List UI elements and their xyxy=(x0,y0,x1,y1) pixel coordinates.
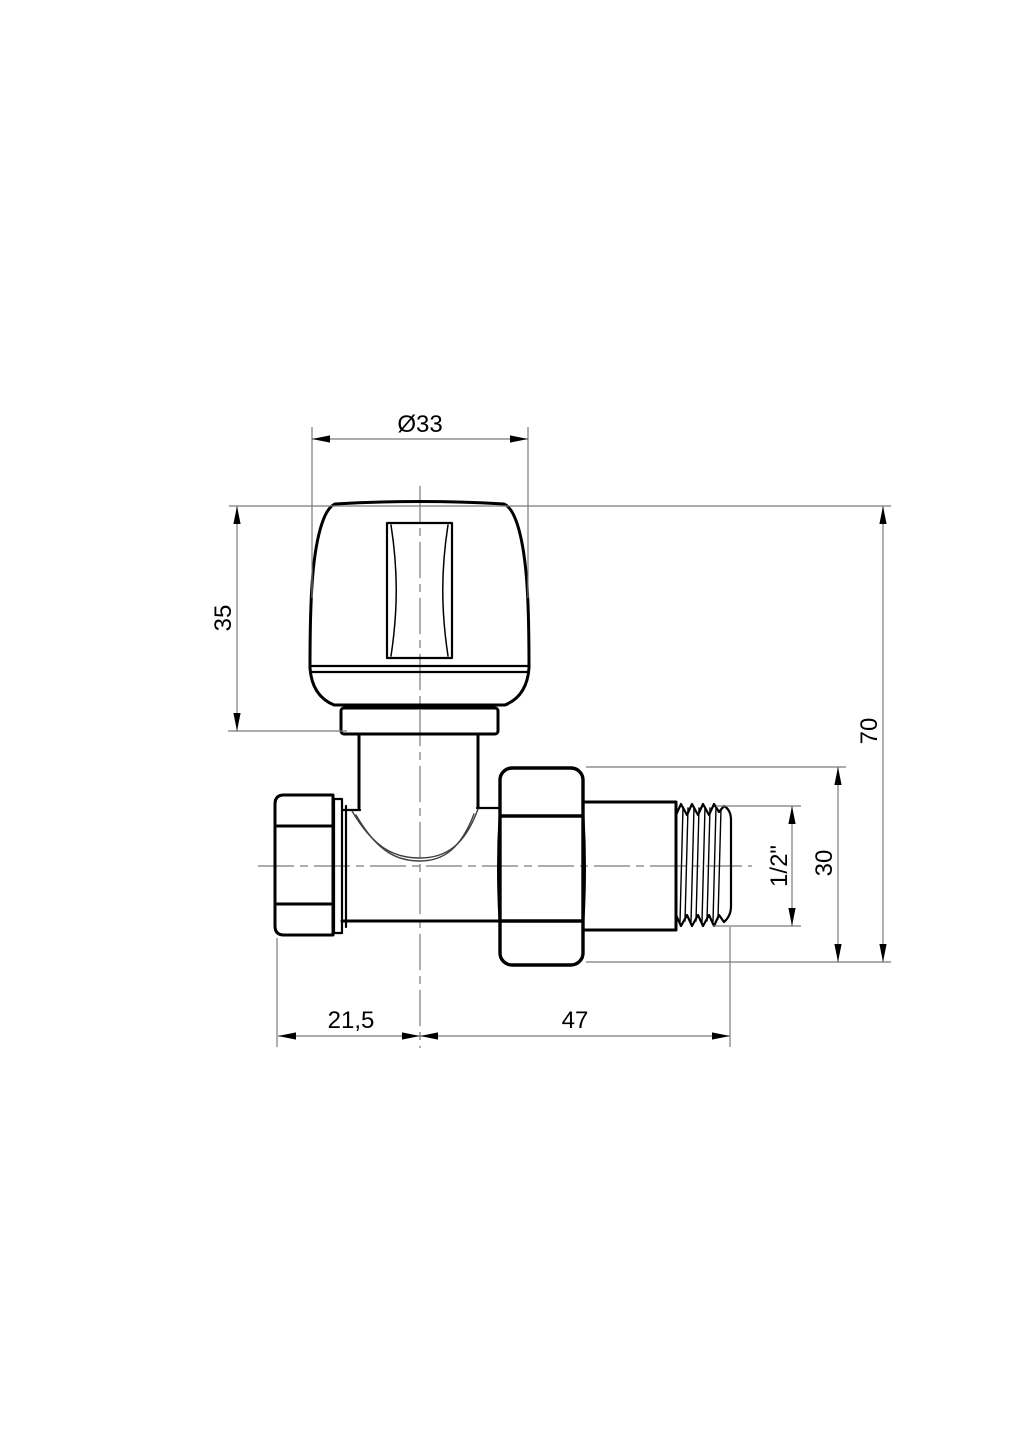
thread-line xyxy=(680,807,683,922)
thread-line xyxy=(707,808,710,921)
thread-line xyxy=(713,807,716,922)
thread-line xyxy=(691,807,694,922)
seat-seam-outer xyxy=(352,809,478,858)
arrowhead xyxy=(712,1032,730,1039)
thread-line xyxy=(685,808,688,921)
extension-lines xyxy=(228,427,891,1047)
arrowhead xyxy=(879,506,886,524)
valve-outline xyxy=(275,502,731,966)
left-nut xyxy=(275,795,333,935)
thread-line xyxy=(718,809,721,919)
arrowhead xyxy=(834,767,841,785)
dimension-arrows xyxy=(233,435,886,1039)
dim-label-thread-size: 1/2" xyxy=(766,845,793,887)
dim-label-knob-diameter: Ø33 xyxy=(397,411,442,438)
dimension-labels: Ø33 35 70 30 1/2" 21,5 47 xyxy=(210,411,883,1034)
grip-curve-left xyxy=(391,525,396,656)
arrowhead xyxy=(402,1032,420,1039)
arrowhead xyxy=(233,713,240,731)
technical-drawing-page: Ø33 35 70 30 1/2" 21,5 47 xyxy=(0,0,1035,1440)
dim-label-knob-height: 35 xyxy=(210,605,237,632)
thread-line xyxy=(696,808,699,921)
arrowhead xyxy=(233,506,240,524)
arrowhead xyxy=(788,908,795,926)
dim-label-union-height: 30 xyxy=(811,850,838,877)
drawing-canvas: Ø33 35 70 30 1/2" 21,5 47 xyxy=(0,0,1035,1440)
arrowhead xyxy=(312,435,330,442)
arrowhead xyxy=(879,944,886,962)
dim-label-body-length: 47 xyxy=(562,1007,589,1034)
dimension-lines xyxy=(237,439,883,1036)
dim-label-total-height: 70 xyxy=(856,718,883,745)
arrowhead xyxy=(510,435,528,442)
arrowhead xyxy=(788,806,795,824)
dim-label-left-end: 21,5 xyxy=(328,1007,375,1034)
grip-curve-right xyxy=(443,525,448,656)
arrowhead xyxy=(278,1032,296,1039)
union-nut-bulge-right xyxy=(583,816,585,921)
union-nut-bulge-left xyxy=(499,816,501,921)
seat-seam-inner xyxy=(356,814,474,861)
thread-line xyxy=(702,807,705,922)
arrowhead xyxy=(834,944,841,962)
arrowhead xyxy=(420,1032,438,1039)
